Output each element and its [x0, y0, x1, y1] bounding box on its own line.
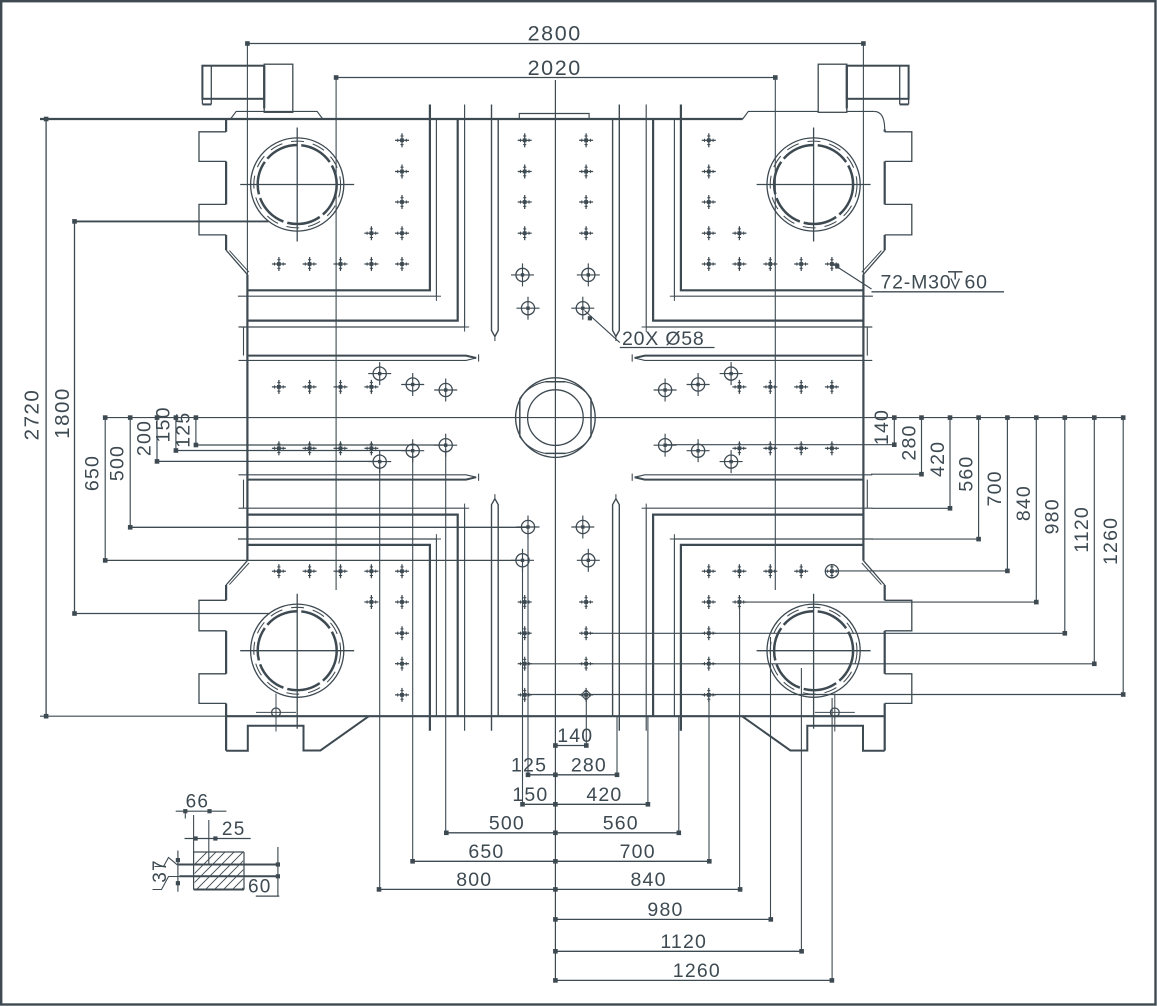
svg-text:500: 500	[107, 445, 129, 481]
svg-text:37: 37	[150, 859, 171, 883]
svg-text:1120: 1120	[1071, 506, 1093, 553]
svg-text:1260: 1260	[673, 960, 721, 982]
svg-text:66: 66	[186, 792, 210, 813]
svg-text:280: 280	[898, 424, 920, 460]
svg-text:60: 60	[965, 272, 988, 294]
svg-text:840: 840	[1013, 485, 1035, 521]
svg-text:500: 500	[489, 812, 525, 834]
svg-text:840: 840	[631, 869, 667, 891]
svg-text:140: 140	[871, 409, 893, 445]
svg-text:2720: 2720	[21, 389, 44, 441]
svg-text:2800: 2800	[528, 21, 582, 45]
svg-text:420: 420	[586, 784, 622, 806]
svg-text:980: 980	[647, 899, 683, 921]
svg-text:560: 560	[603, 812, 639, 834]
svg-text:650: 650	[82, 455, 104, 491]
svg-text:25: 25	[222, 819, 246, 840]
svg-text:700: 700	[620, 841, 656, 863]
svg-text:125: 125	[511, 754, 547, 776]
svg-text:280: 280	[571, 754, 607, 776]
svg-text:20X Ø58: 20X Ø58	[622, 328, 705, 350]
svg-text:72-M30: 72-M30	[881, 272, 952, 294]
svg-text:420: 420	[927, 441, 949, 477]
svg-text:800: 800	[456, 869, 492, 891]
svg-text:140: 140	[557, 725, 593, 747]
svg-text:560: 560	[955, 456, 977, 492]
svg-text:1260: 1260	[1100, 517, 1122, 565]
svg-text:1120: 1120	[660, 931, 707, 953]
svg-text:1800: 1800	[51, 387, 74, 439]
svg-text:650: 650	[468, 841, 504, 863]
svg-text:150: 150	[512, 784, 548, 806]
svg-text:2020: 2020	[528, 56, 582, 80]
svg-text:150: 150	[152, 406, 174, 442]
svg-text:980: 980	[1042, 498, 1064, 534]
svg-text:125: 125	[172, 412, 194, 448]
svg-text:60: 60	[248, 877, 272, 898]
svg-text:700: 700	[984, 470, 1006, 506]
